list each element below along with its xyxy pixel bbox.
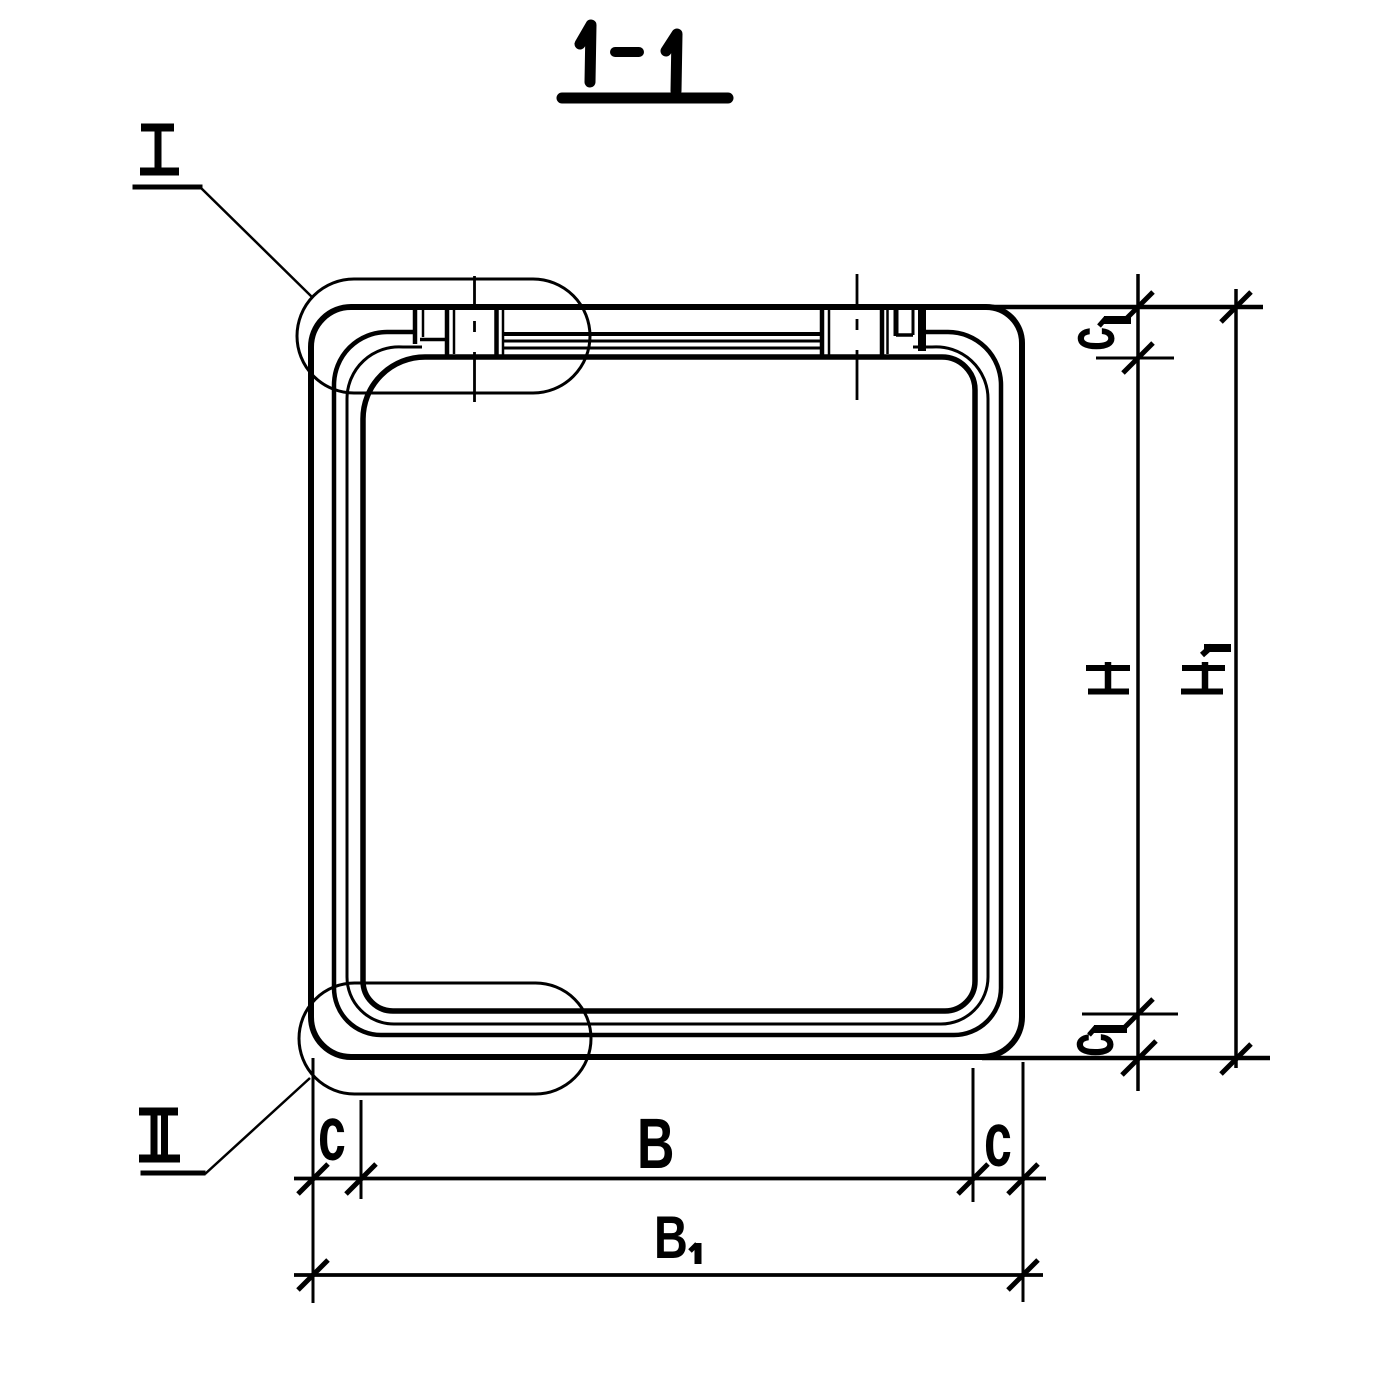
svg-text:B: B (637, 1105, 674, 1184)
svg-text:c: c (318, 1090, 346, 1177)
svg-text:c: c (1053, 1033, 1128, 1057)
svg-text:c: c (984, 1096, 1012, 1183)
svg-text:B: B (654, 1204, 688, 1271)
svg-text:c: c (1054, 327, 1129, 351)
